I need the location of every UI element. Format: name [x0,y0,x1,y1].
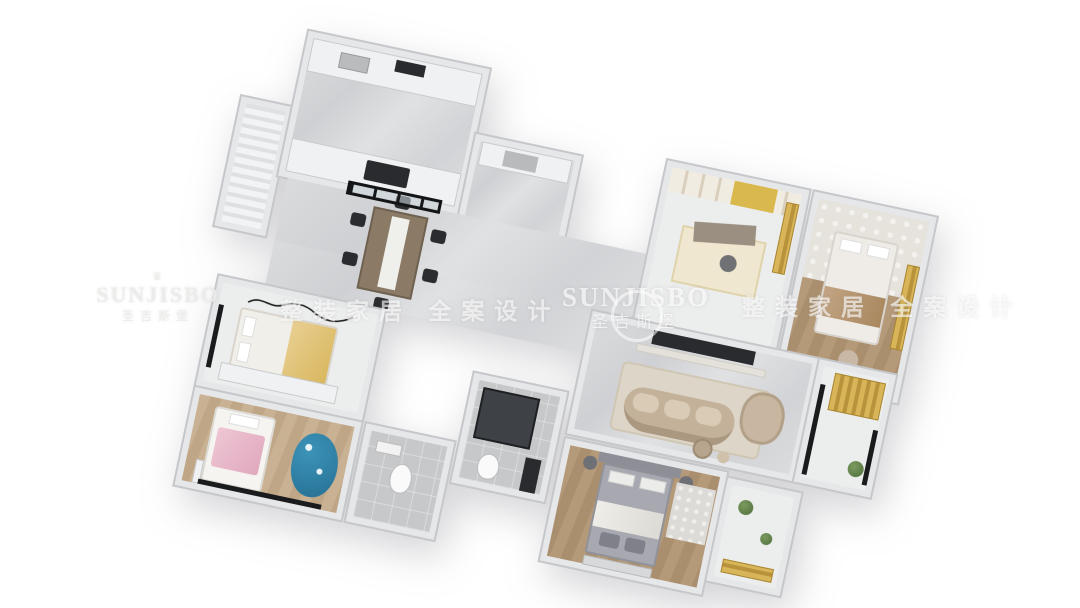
balcony-outer-window [862,430,879,486]
mural-dot [316,468,323,475]
dining-chair [341,251,358,267]
table-runner [377,216,410,290]
balcony-plant [737,499,755,517]
pillow [639,477,667,494]
toilet [387,462,415,496]
pillow [241,316,257,338]
dining-chair [349,212,366,228]
shower-enclosure [473,387,541,450]
pillow [236,341,252,363]
balcony-plant [759,532,773,546]
bed-cushion [624,537,646,555]
master-bedroom [540,438,727,595]
master-bed [584,463,674,568]
bathroom-sink [375,440,403,457]
pillow [608,470,636,487]
bathroom-shower [451,373,567,502]
master-balcony-gold-curtain [720,558,774,583]
balcony-gold-curtain [827,373,886,421]
kids-blue-mural-rug [285,429,343,501]
bath-vanity [519,457,542,494]
mural-dot [305,443,313,451]
sofa-cushion [663,398,692,421]
bathroom-small [346,423,455,540]
sofa-cushion [631,392,660,415]
nightstand [582,454,599,471]
kids-pink-blanket [210,427,265,476]
pillow [228,413,260,430]
bed-throw [819,286,886,328]
pillow [866,244,890,260]
floorplan [159,20,942,608]
bedroom-left-window [206,304,224,368]
kids-bed [200,406,276,493]
sofa-cushion [694,405,723,428]
study-accent-wall [730,181,778,214]
pillow [839,238,863,254]
master-tile-rug [665,482,716,545]
dining-chair [421,268,438,284]
bed-cushion [598,532,620,550]
study-desk [693,222,756,246]
dining-chair [430,229,447,245]
toilet [475,452,502,482]
render-canvas: ♛ SUNJISBO 圣吉斯堡 SUNJISBO 圣吉斯堡 整装家居 全案设计 … [0,0,1080,608]
